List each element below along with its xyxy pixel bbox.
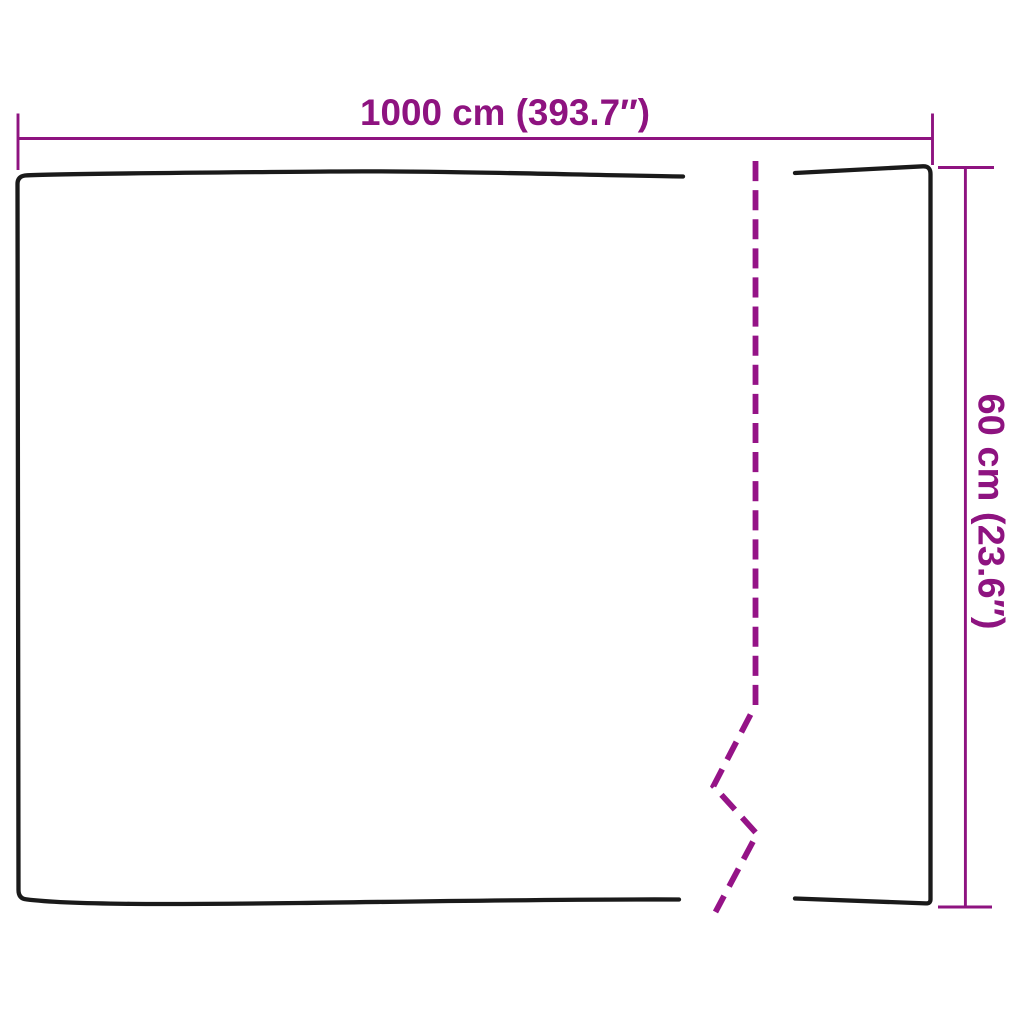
svg-text:1000 cm (393.7″): 1000 cm (393.7″) (360, 92, 650, 133)
svg-text:60 cm (23.6″): 60 cm (23.6″) (971, 394, 1012, 630)
